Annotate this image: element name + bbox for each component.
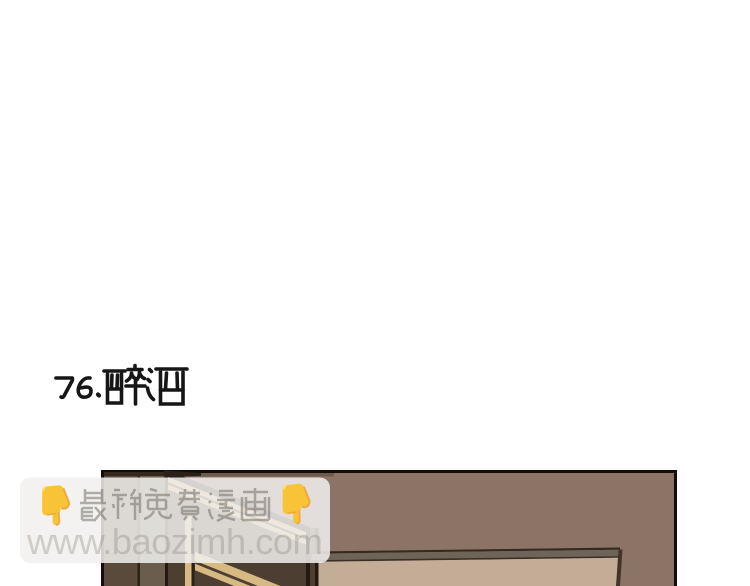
svg-text:www.baozimh.com: www.baozimh.com: [26, 521, 322, 562]
